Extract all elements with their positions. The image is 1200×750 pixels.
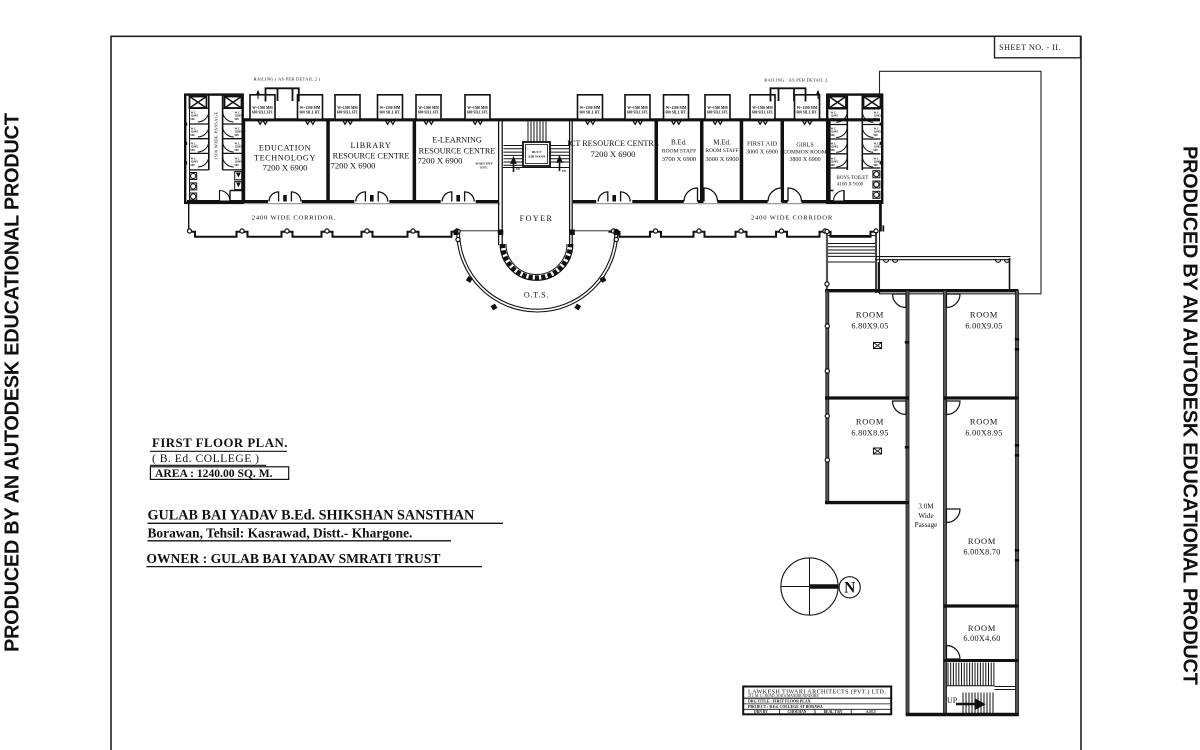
svg-text:ICT RESOURCE CENTRE: ICT RESOURCE CENTRE [567,139,659,148]
svg-text:900: 900 [831,149,836,152]
svg-text:6.80X8.95: 6.80X8.95 [851,429,888,438]
svg-text:Borawan, Tehsil: Kasrawad, Dis: Borawan, Tehsil: Kasrawad, Distt.- Kharg… [148,525,413,540]
svg-text:CHOUHAN: CHOUHAN [788,710,807,714]
svg-text:N: N [844,580,855,597]
svg-text:O.T.S.: O.T.S. [524,291,549,300]
svg-text:6.80X9.05: 6.80X9.05 [851,322,888,331]
svg-text:6.00X8.70: 6.00X8.70 [963,548,1000,557]
svg-text:900: 900 [191,164,196,167]
svg-text:RESOURCE CENTRE: RESOURCE CENTRE [333,152,410,161]
svg-text:900: 900 [874,134,879,137]
svg-text:FIRST FLOOR PLAN.: FIRST FLOOR PLAN. [152,436,288,450]
svg-text:900: 900 [874,164,879,167]
svg-text:DRG TITLE : FIRST FLOOR PL: DRG TITLE : FIRST FLOOR PLAN. [748,700,811,704]
svg-text:A.M.T: A.M.T [866,710,877,714]
svg-text:ROOM STAFF: ROOM STAFF [662,149,697,155]
svg-text:FIRST AID: FIRST AID [747,141,777,148]
svg-text:ENT.: ENT. [480,166,488,170]
svg-text:B.Ed.: B.Ed. [671,139,687,147]
svg-text:SHEET NO. - II.: SHEET NO. - II. [999,43,1061,52]
svg-text:ROOM: ROOM [856,311,884,320]
svg-text:ROOM: ROOM [970,311,998,320]
svg-text:900: 900 [235,134,240,137]
svg-text:6.00X4.60: 6.00X4.60 [963,634,1000,643]
svg-text:DEAL T BY: DEAL T BY [824,710,843,714]
svg-text:Passage: Passage [915,521,938,529]
svg-text:900: 900 [191,134,196,137]
svg-text:ROOM: ROOM [970,418,998,427]
svg-text:1500 WIDE PASSAGE: 1500 WIDE PASSAGE [214,112,219,161]
svg-text:DRN BY: DRN BY [754,710,768,714]
svg-text:7200 X 6900: 7200 X 6900 [263,163,308,173]
svg-text:900: 900 [831,118,836,121]
svg-text:TECHNOLOGY: TECHNOLOGY [254,154,316,163]
svg-text:4100 X 9100: 4100 X 9100 [837,183,864,188]
svg-text:GIRLS: GIRLS [796,143,813,149]
svg-text:3000 X 6900: 3000 X 6900 [705,156,738,163]
svg-text:2400 WIDE CORRIDOR: 2400 WIDE CORRIDOR [751,215,833,222]
svg-text:900: 900 [235,164,240,167]
svg-text:( B. Ed. COLLEGE ): ( B. Ed. COLLEGE ) [152,452,260,465]
svg-text:3000 X 6900: 3000 X 6900 [746,150,778,156]
svg-text:900: 900 [874,149,879,152]
svg-text:3800 X 6900: 3800 X 6900 [789,157,820,163]
svg-text:AIR WASH: AIR WASH [528,155,545,159]
svg-text:900: 900 [191,118,196,121]
svg-text:OWNER : GULAB BAI YADAV SMRATI: OWNER : GULAB BAI YADAV SMRATI TRUST [146,551,440,566]
svg-text:ROOM STAFF: ROOM STAFF [705,148,738,154]
svg-text:RAILING : AS PER DETAIL 2: RAILING : AS PER DETAIL 2 [764,78,827,83]
svg-text:3700 X 6900: 3700 X 6900 [662,156,697,163]
svg-text:BOYS TOILET: BOYS TOILET [837,176,869,181]
svg-text:UP: UP [516,167,520,171]
svg-text:LIBRARY: LIBRARY [350,141,391,150]
svg-text:COMMON ROOM: COMMON ROOM [783,150,826,156]
svg-text:AREA : 1240.00 SQ. M.: AREA : 1240.00 SQ. M. [155,467,273,480]
svg-text:3.0M: 3.0M [918,503,934,511]
svg-text:ROOM: ROOM [968,624,996,633]
svg-text:PROJECT : B.Ed. COLLEGE AT: PROJECT : B.Ed. COLLEGE AT BORAWA [748,705,823,709]
svg-text:2400 WIDE CORRIDOR.: 2400 WIDE CORRIDOR. [252,215,337,222]
svg-text:EDUCATION: EDUCATION [259,144,311,153]
svg-text:M.Ed.: M.Ed. [713,139,731,147]
svg-text:6.00X9.05: 6.00X9.05 [965,322,1002,331]
svg-text:E-LEARNING: E-LEARNING [432,136,482,145]
svg-text:6.00X8.95: 6.00X8.95 [965,429,1002,438]
svg-text:900: 900 [235,149,240,152]
svg-text:7200 X 6900: 7200 X 6900 [331,161,376,171]
svg-text:900: 900 [191,149,196,152]
svg-text:7200 X 6900: 7200 X 6900 [418,156,463,166]
svg-text:GULAB BAI YADAV B.Ed. SHIKSHAN: GULAB BAI YADAV B.Ed. SHIKSHAN SANSTHAN [148,508,476,524]
svg-text:900: 900 [235,118,240,121]
svg-text:RESOURCE CENTRE: RESOURCE CENTRE [419,147,496,156]
svg-text:900: 900 [874,118,879,121]
svg-text:FOYER: FOYER [520,214,554,223]
svg-text:UP: UP [562,169,566,173]
svg-text:PRODUCED BY AN AUTODESK EDUCAT: PRODUCED BY AN AUTODESK EDUCATIONAL PROD… [2,113,24,652]
svg-text:RAILING ( AS PER DETAIL.2 ): RAILING ( AS PER DETAIL.2 ) [254,77,321,82]
svg-text:PRODUCED BY AN AUTODESK EDUCAT: PRODUCED BY AN AUTODESK EDUCATIONAL PROD… [1179,146,1200,685]
svg-text:ROOM: ROOM [968,537,996,546]
svg-text:7200 X 6900: 7200 X 6900 [591,149,636,159]
svg-text:Wide: Wide [918,512,933,520]
svg-text:DUCT: DUCT [532,150,542,154]
svg-text:ROOM: ROOM [856,418,884,427]
svg-text:900: 900 [831,134,836,137]
svg-text:900: 900 [831,164,836,167]
